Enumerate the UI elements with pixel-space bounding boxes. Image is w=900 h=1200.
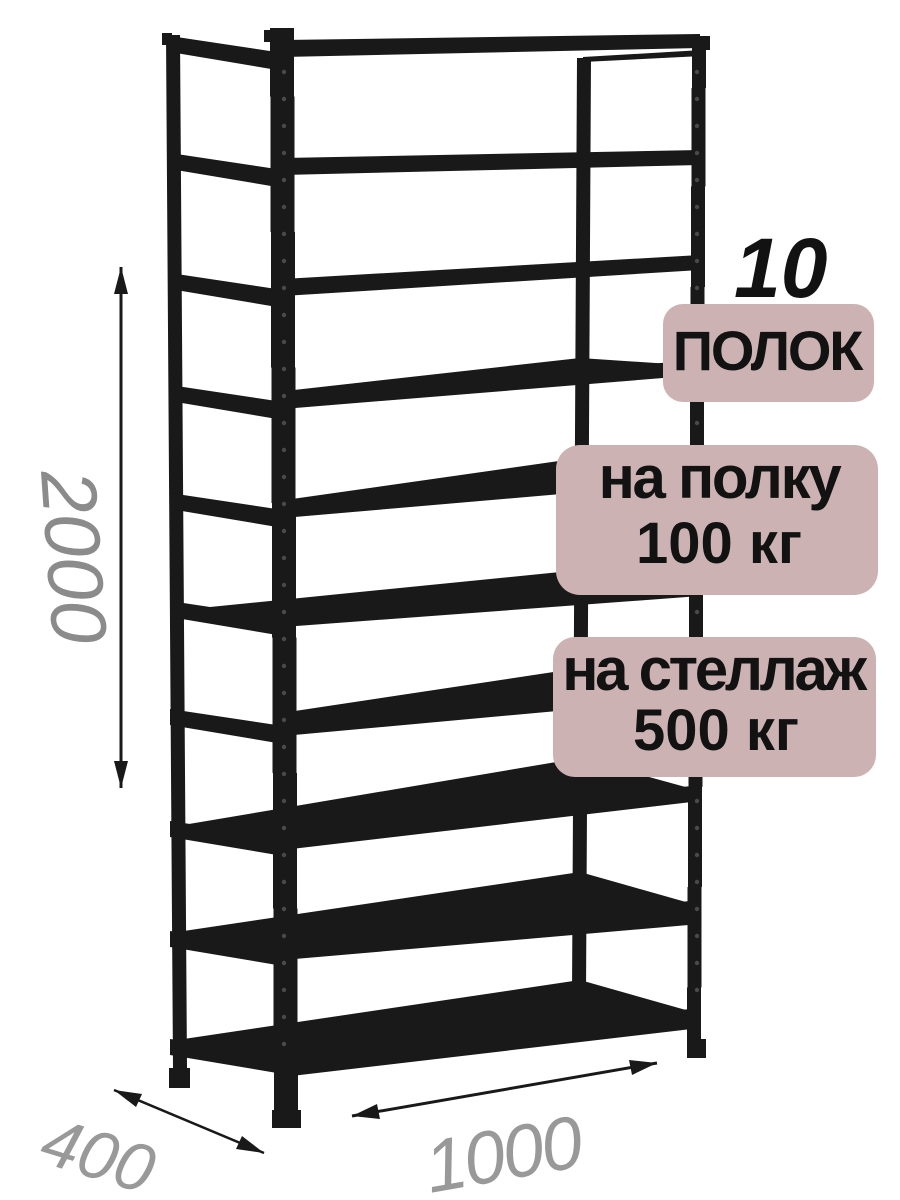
svg-text:ПОЛОК: ПОЛОК [673, 319, 864, 382]
svg-text:2000: 2000 [24, 466, 124, 646]
svg-text:на стеллаж: на стеллаж [562, 636, 868, 703]
svg-text:100 кг: 100 кг [636, 511, 802, 576]
svg-text:10: 10 [734, 221, 827, 315]
svg-text:500 кг: 500 кг [633, 698, 799, 763]
svg-text:на полку: на полку [599, 444, 843, 511]
